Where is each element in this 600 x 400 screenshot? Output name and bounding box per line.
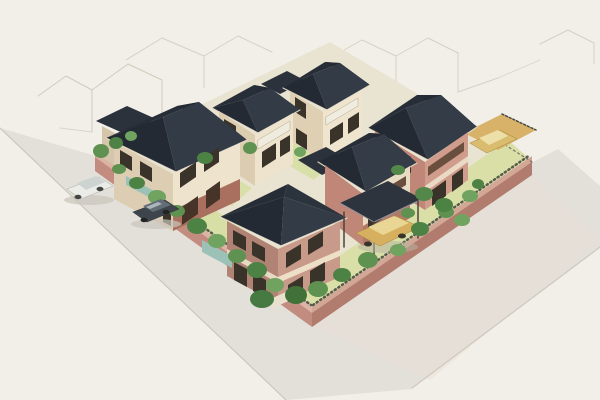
- hedge-bush: [454, 214, 470, 226]
- garden-tree: [187, 218, 207, 234]
- garden-tree: [358, 252, 378, 268]
- car-gold-wheel: [364, 242, 372, 247]
- garden-tree: [435, 198, 453, 212]
- hedge-bush: [401, 208, 415, 218]
- hedge-bush: [411, 222, 429, 236]
- hedge-bush: [390, 244, 406, 256]
- street-car-white-shadow: [64, 195, 114, 205]
- site-illustration: [0, 0, 600, 400]
- street-car-dark-wheel: [141, 218, 148, 222]
- architectural-rendering: [0, 0, 600, 400]
- hedge-bush: [333, 268, 351, 282]
- hedge-bush: [112, 164, 126, 174]
- hedge-bush: [93, 144, 109, 158]
- car-gold-wheel: [398, 234, 406, 239]
- street-car-dark-shadow: [131, 219, 181, 229]
- garden-tree: [294, 147, 306, 157]
- garden-tree: [415, 187, 433, 201]
- hedge-bush: [472, 179, 484, 189]
- hedge-bush: [208, 234, 226, 248]
- hedge-bush: [125, 131, 137, 141]
- garden-tree: [308, 281, 328, 297]
- hedge-bush: [266, 278, 284, 292]
- garden-tree: [285, 286, 307, 304]
- garden-tree: [247, 262, 267, 278]
- hedge-bush: [462, 190, 478, 202]
- street-car-dark-wheel: [163, 210, 170, 214]
- hedge-bush: [109, 137, 123, 149]
- hedge-bush: [228, 249, 246, 263]
- garden-tree: [197, 152, 213, 164]
- garden-tree: [391, 165, 405, 175]
- hedge-bush: [129, 177, 145, 189]
- garden-tree: [250, 290, 274, 308]
- street-car-white-wheel: [75, 195, 82, 199]
- garden-tree: [243, 142, 257, 154]
- street-car-white-wheel: [97, 187, 104, 191]
